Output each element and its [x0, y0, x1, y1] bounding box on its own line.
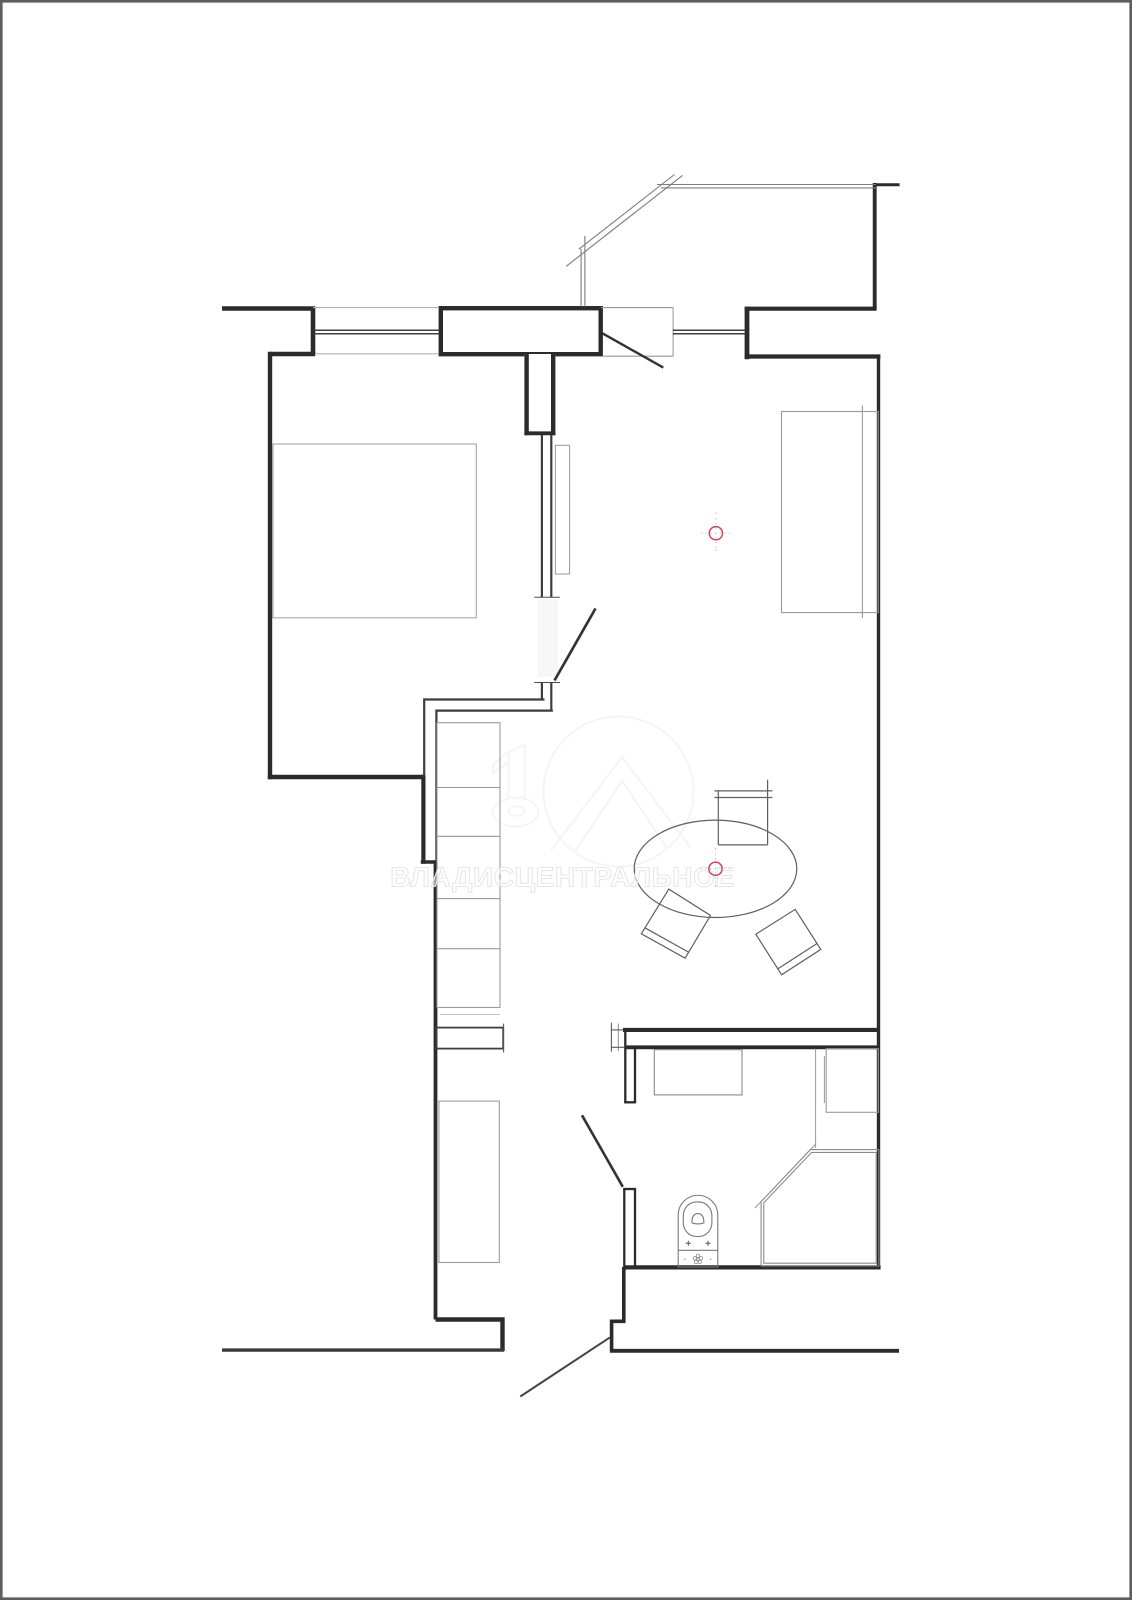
svg-text:ВЛАДИСЦЕНТРАЛЬНОЕ: ВЛАДИСЦЕНТРАЛЬНОЕ	[390, 862, 735, 893]
